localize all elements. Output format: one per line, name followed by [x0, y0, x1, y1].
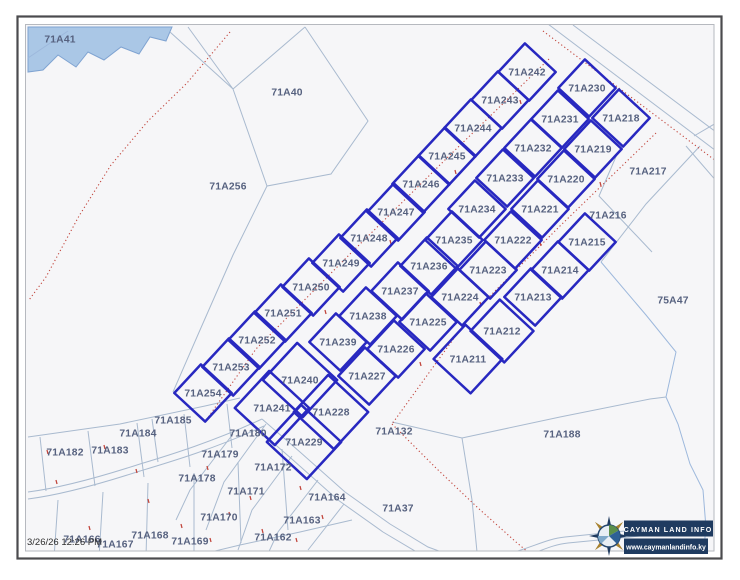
logo-url: www.caymanlandinfo.ky: [625, 545, 706, 552]
parcel-label: 71A41: [44, 35, 75, 46]
parcel-label: 71A253: [212, 363, 249, 374]
parcel-label: 71A240: [281, 376, 318, 387]
parcel-label: 71A252: [238, 336, 275, 347]
parcel-label: 75A47: [657, 296, 688, 307]
parcel-label: 71A217: [629, 167, 666, 178]
parcel-label: 71A241: [253, 404, 290, 415]
parcel-label: 71A246: [402, 180, 439, 191]
parcel-label: 71A220: [547, 175, 584, 186]
parcel-label: 71A219: [574, 145, 611, 156]
parcel-label: 71A212: [483, 327, 520, 338]
parcel-label: 71A132: [375, 427, 412, 438]
parcel-label: 71A218: [602, 114, 639, 125]
parcel-label: 71A172: [254, 463, 291, 474]
parcel-label: 71A169: [171, 537, 208, 548]
map-export-page: 71A24271A24371A24471A24571A24671A24771A2…: [0, 0, 740, 580]
parcel-label: 71A236: [410, 262, 447, 273]
parcel-label: 71A233: [486, 174, 523, 185]
parcel-label: 71A237: [381, 287, 418, 298]
parcel-label: 71A225: [409, 318, 446, 329]
parcel-label: 71A214: [541, 266, 578, 277]
parcel-label: 71A223: [469, 266, 506, 277]
parcel-label: 71A235: [435, 236, 472, 247]
parcel-label: 71A226: [377, 345, 414, 356]
parcel-label: 71A184: [119, 429, 156, 440]
parcel-label: 71A244: [454, 124, 491, 135]
parcel-label: 71A228: [312, 408, 349, 419]
parcel-label: 71A185: [154, 416, 191, 427]
parcel-label: 71A249: [322, 259, 359, 270]
parcel-label: 71A232: [514, 144, 551, 155]
parcel-label: 71A238: [349, 312, 386, 323]
parcel-label: 71A251: [264, 309, 301, 320]
parcel-label: 71A234: [458, 205, 495, 216]
parcel-label: 71A164: [308, 493, 345, 504]
parcel-label: 71A171: [227, 487, 264, 498]
parcel-label: 71A248: [350, 234, 387, 245]
parcel-label: 71A250: [292, 283, 329, 294]
parcel-label: 71A239: [319, 338, 356, 349]
parcel-label: 71A180: [229, 429, 266, 440]
compass-logo-icon: [589, 516, 629, 556]
parcel-label: 71A222: [494, 236, 531, 247]
parcel-label: 71A40: [271, 88, 302, 99]
parcel-label: 71A247: [377, 208, 414, 219]
parcel-label: 71A245: [428, 152, 465, 163]
parcel-label: 71A231: [541, 115, 578, 126]
parcel-label: 71A170: [200, 513, 237, 524]
parcel-label: 71A256: [209, 182, 246, 193]
parcel-label: 71A178: [178, 474, 215, 485]
parcel-label: 71A162: [254, 533, 291, 544]
parcel-label: 71A183: [91, 446, 128, 457]
parcel-label: 71A179: [201, 450, 238, 461]
parcel-label: 71A37: [382, 504, 413, 515]
parcel-label: 71A230: [568, 84, 605, 95]
parcel-label: 71A182: [46, 448, 83, 459]
parcel-label: 71A213: [514, 293, 551, 304]
parcel-label: 71A224: [441, 293, 478, 304]
parcel-label: 71A168: [131, 531, 168, 542]
parcel-label: 71A242: [508, 68, 545, 79]
parcel-label: 71A254: [184, 389, 221, 400]
parcel-label: 71A188: [543, 430, 580, 441]
parcel-label: 71A216: [589, 211, 626, 222]
parcel-label: 71A221: [521, 205, 558, 216]
parcel-label: 71A227: [348, 372, 385, 383]
logo-title: CAYMAN LAND INFO: [624, 526, 713, 534]
parcel-label: 71A243: [481, 96, 518, 107]
parcel-label: 71A215: [568, 238, 605, 249]
parcel-label: 71A211: [450, 355, 487, 366]
map-timestamp: 3/26/26 12:26 PM: [27, 537, 102, 548]
map-background: [26, 25, 714, 551]
parcel-label: 71A229: [285, 438, 322, 449]
cadastral-map: 71A24271A24371A24471A24571A24671A24771A2…: [0, 0, 740, 580]
parcel-label: 71A163: [283, 516, 320, 527]
